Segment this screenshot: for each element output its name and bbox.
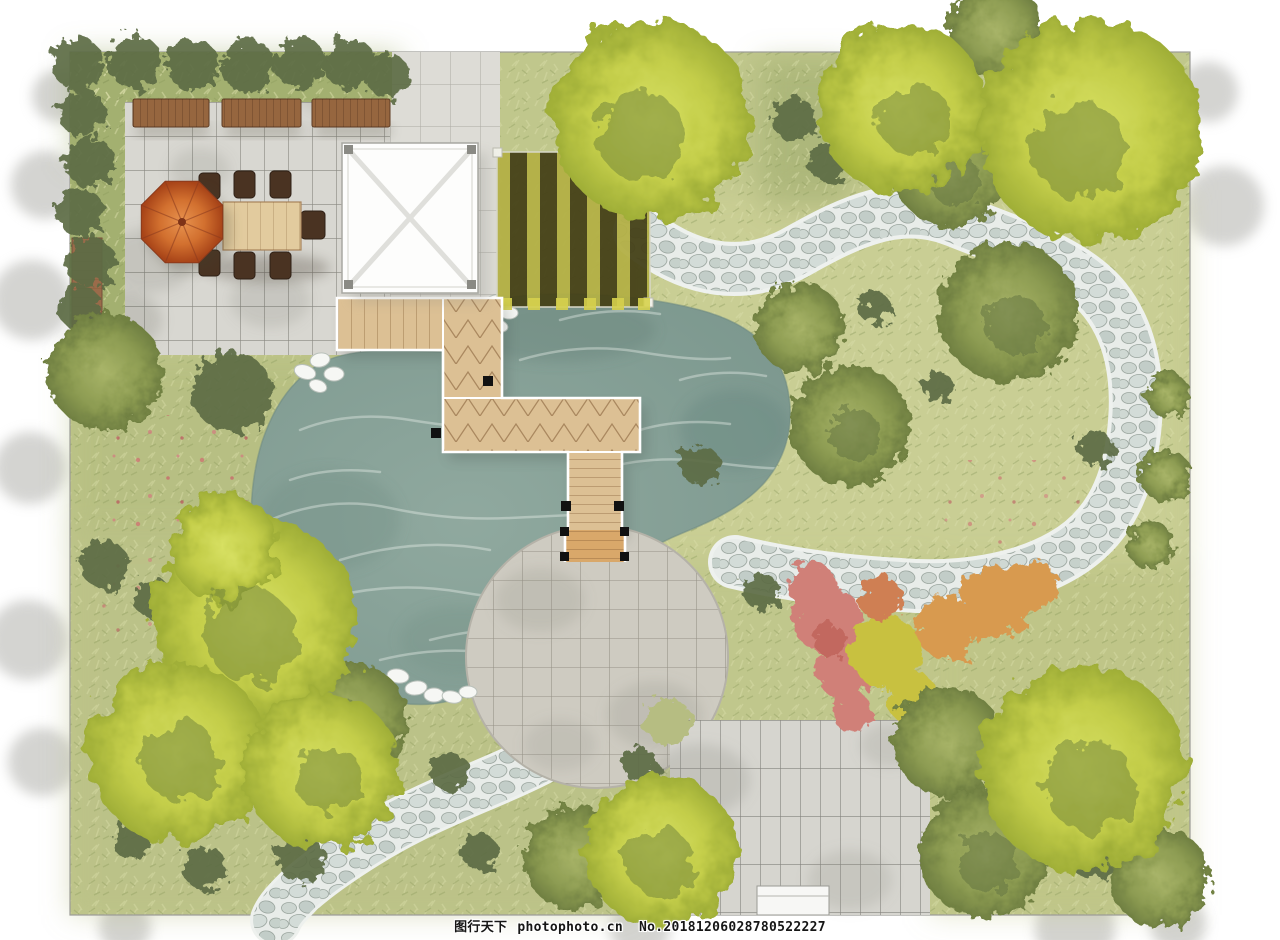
grass-notch xyxy=(644,698,692,746)
garden-plan-rendering xyxy=(0,0,1280,940)
table-shadow xyxy=(206,254,330,282)
watermark-site-name: 图行天下 xyxy=(454,920,507,935)
chair xyxy=(234,252,255,279)
chair xyxy=(270,252,291,279)
bench-slats xyxy=(133,99,390,127)
pergola xyxy=(342,143,488,303)
chair xyxy=(301,211,325,239)
deck-bridge xyxy=(560,527,629,562)
watermark-site-url: photophoto.cn xyxy=(517,920,623,935)
shrub xyxy=(52,38,104,90)
umbrella-pole xyxy=(178,218,186,226)
watermark-bar: 图行天下photophoto.cnNo.20181206028780522227 xyxy=(0,916,1280,935)
chair xyxy=(270,171,291,198)
pad-step xyxy=(757,886,829,915)
watermark-serial: No.20181206028780522227 xyxy=(639,920,826,935)
garden-plan-canvas: 图行天下photophoto.cnNo.20181206028780522227 xyxy=(0,0,1280,940)
chair xyxy=(234,171,255,198)
